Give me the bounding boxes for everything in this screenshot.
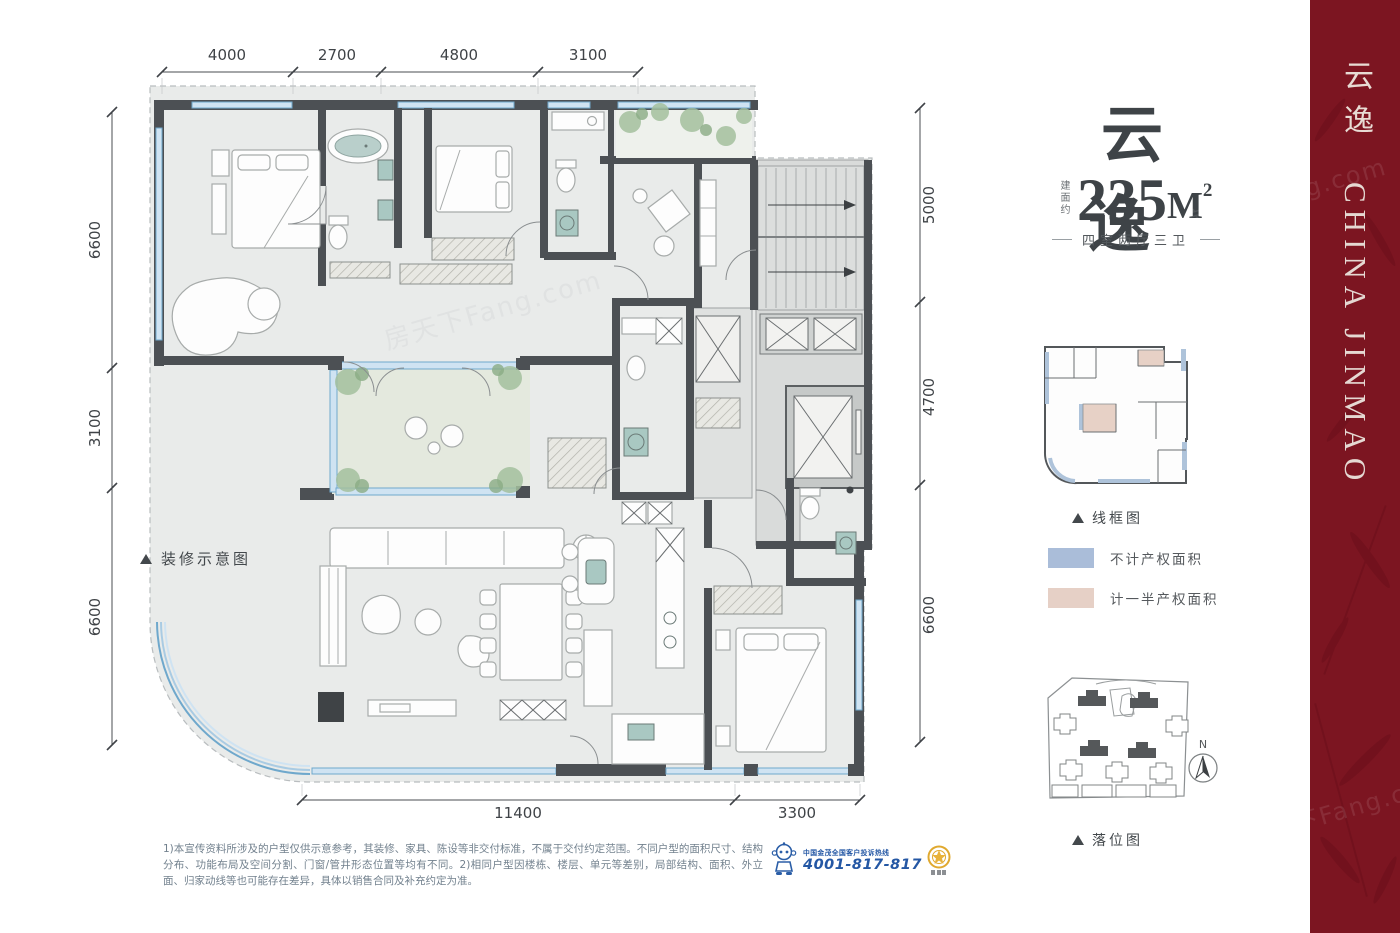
svg-text:N: N: [1199, 738, 1207, 751]
robot-mascot-icon: [770, 842, 798, 878]
svg-text:3300: 3300: [778, 804, 816, 822]
area-value: 235: [1077, 172, 1167, 228]
sidebar-title-en: CHINA JINMAO: [1337, 182, 1373, 487]
svg-text:6600: 6600: [920, 596, 938, 634]
seal-marks: [931, 870, 946, 875]
floorplan-page: { "floor_plan": { "label": "装修示意图", "dim…: [0, 0, 1400, 933]
wireframe-caption-text: 线框图: [1092, 508, 1143, 528]
plan-label-text: 装修示意图: [161, 548, 251, 569]
svg-text:4700: 4700: [920, 378, 938, 416]
triangle-marker-icon: [140, 554, 152, 564]
disclaimer-text: 1)本宣传资料所涉及的户型仅供示意参考，其装修、家具、陈设等非交付标准，不属于交…: [163, 841, 763, 889]
brand-sidebar: 云逸 CHINA JINMAO: [1310, 0, 1400, 933]
svg-text:5000: 5000: [920, 186, 938, 224]
highlighted-buildings: [1078, 690, 1158, 758]
siteplan-caption-text: 落位图: [1092, 830, 1143, 850]
hotline-block: 中国金茂全国客户投诉热线 4001-817-817: [770, 842, 951, 878]
gold-seal: [927, 845, 951, 875]
triangle-marker-icon: [1072, 513, 1084, 523]
svg-text:3100: 3100: [86, 409, 104, 447]
layout-text: 四室两厅三卫: [1082, 230, 1190, 249]
hotline-text: 中国金茂全国客户投诉热线 4001-817-817: [803, 847, 922, 873]
wireframe-diagram: [1038, 342, 1196, 492]
legend-swatch-blue: [1048, 548, 1094, 568]
legend-label: 计一半产权面积: [1110, 588, 1219, 608]
area-prefix: 建面约: [1056, 180, 1071, 220]
hotline-label: 中国金茂全国客户投诉热线: [803, 847, 922, 857]
plan-label: 装修示意图: [140, 548, 251, 569]
svg-text:2700: 2700: [318, 46, 356, 64]
site-plan-diagram: N: [1038, 668, 1220, 823]
legend-swatch-pink: [1048, 588, 1094, 608]
divider-line: [1200, 239, 1220, 240]
legend-item-blue: 不计产权面积: [1048, 548, 1203, 568]
gold-seal-icon: [927, 845, 951, 869]
terrace-garden: [328, 358, 530, 498]
layout-row: 四室两厅三卫: [1046, 230, 1226, 249]
divider-line: [1052, 239, 1072, 240]
svg-text:4800: 4800: [440, 46, 478, 64]
svg-text:11400: 11400: [494, 804, 542, 822]
entry-balcony-plants: [616, 103, 752, 158]
svg-text:6600: 6600: [86, 598, 104, 636]
wireframe-caption: 线框图: [1072, 508, 1143, 528]
sidebar-title-cn: 云逸: [1333, 60, 1377, 148]
area-block: 建面约 235 M 2: [1056, 172, 1212, 228]
legend-item-pink: 计一半产权面积: [1048, 588, 1219, 608]
legend-label: 不计产权面积: [1110, 548, 1203, 568]
other-buildings: [1052, 714, 1188, 797]
svg-text:4000: 4000: [208, 46, 246, 64]
area-unit: M: [1167, 184, 1203, 228]
siteplan-caption: 落位图: [1072, 830, 1143, 850]
area-superscript: 2: [1203, 180, 1213, 202]
floor-plan: 4000 2700 4800 3100 6600 3100 6600 5000 …: [0, 0, 990, 840]
north-compass: N: [1189, 738, 1217, 782]
svg-text:3100: 3100: [569, 46, 607, 64]
svg-text:6600: 6600: [86, 221, 104, 259]
triangle-marker-icon: [1072, 835, 1084, 845]
hotline-number: 4001-817-817: [803, 857, 922, 873]
